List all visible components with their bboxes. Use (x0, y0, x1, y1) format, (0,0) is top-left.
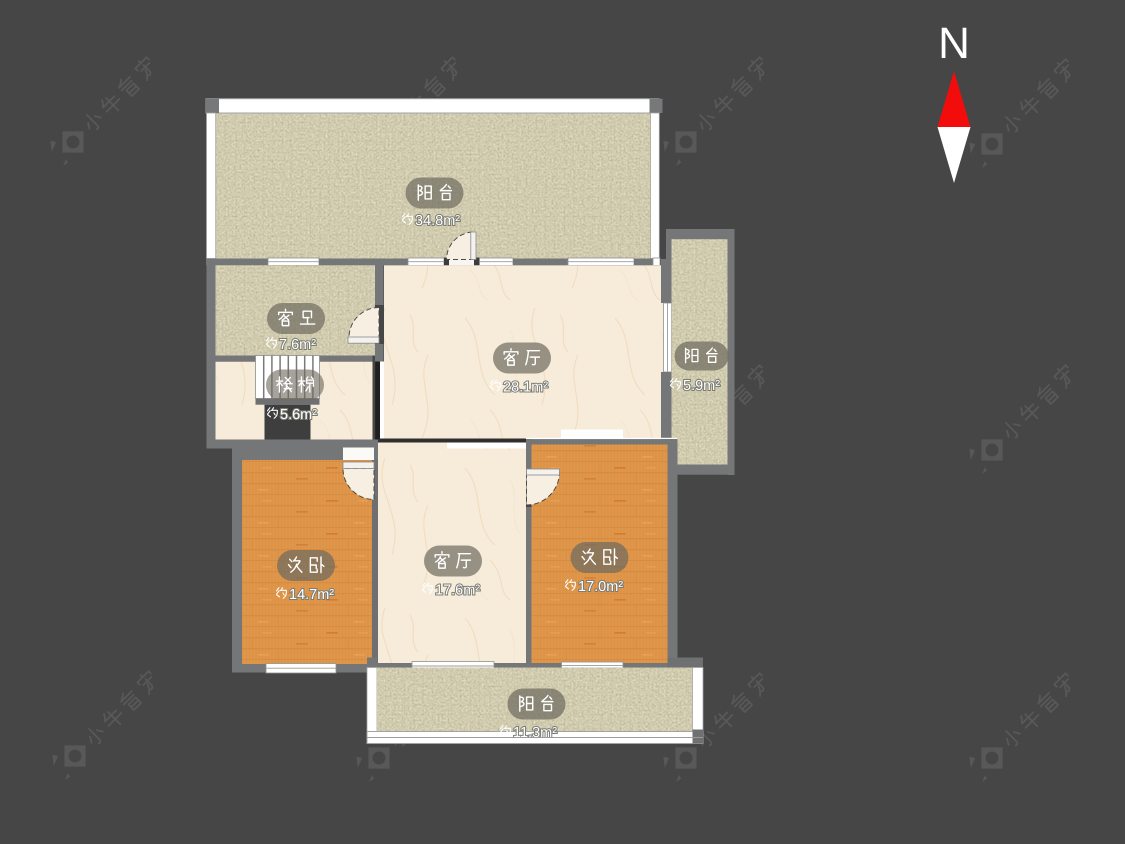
svg-text:5.9m²: 5.9m² (683, 378, 720, 394)
svg-text:5.6m²: 5.6m² (280, 407, 317, 423)
svg-text:28.1m²: 28.1m² (503, 380, 548, 396)
svg-text:34.8m²: 34.8m² (415, 213, 460, 229)
svg-text:11.3m²: 11.3m² (513, 725, 557, 741)
svg-text:14.7m²: 14.7m² (289, 587, 334, 603)
svg-text:7.6m²: 7.6m² (279, 337, 316, 353)
svg-text:N: N (938, 19, 970, 68)
svg-text:17.0m²: 17.0m² (578, 579, 623, 595)
svg-text:17.6m²: 17.6m² (435, 583, 480, 599)
